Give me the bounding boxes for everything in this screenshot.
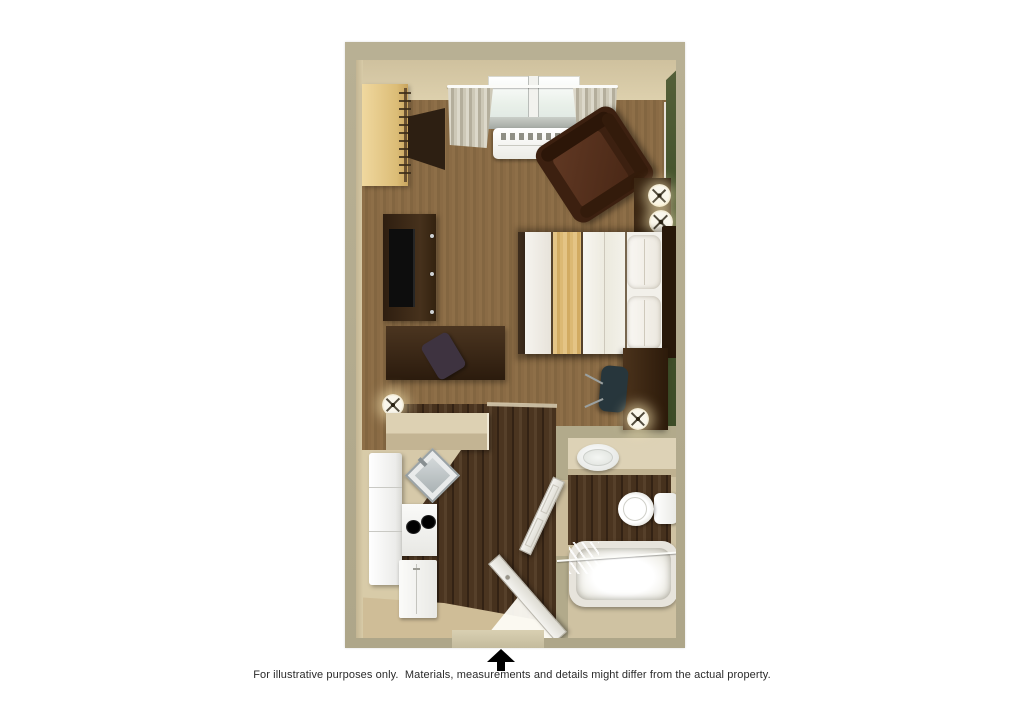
drawer-knob (430, 234, 434, 238)
disclaimer-text: For illustrative purposes only. Material… (0, 669, 1024, 681)
bed-scarf (551, 232, 583, 354)
bed-linen (525, 232, 551, 354)
television (389, 229, 415, 307)
bathroom-sink (577, 444, 619, 471)
stove (402, 504, 437, 556)
door-handle (505, 575, 511, 581)
drawer-knob (430, 272, 434, 276)
faucet (418, 457, 428, 467)
curtain-left (448, 88, 493, 148)
queen-bed (525, 232, 662, 354)
sink-bowl (583, 449, 613, 466)
pillow (627, 296, 661, 350)
drawer-knob (430, 310, 434, 314)
dishwasher (399, 560, 437, 618)
refrigerator (369, 453, 402, 585)
pillow (627, 235, 661, 289)
floor-plan-interior (356, 60, 676, 638)
burner (406, 520, 421, 534)
floor-plan (345, 42, 685, 648)
bed-seam (604, 232, 605, 354)
desk-lamp-icon (627, 408, 649, 430)
office-chair (598, 365, 629, 413)
toilet-tank (654, 493, 676, 524)
kitchen-counter-bar (386, 413, 489, 450)
burner (421, 515, 436, 529)
window-mullion (528, 76, 539, 122)
counter-edge-highlight (487, 413, 489, 450)
headboard (662, 226, 676, 358)
bed-footboard (518, 232, 525, 354)
curtain-rod (447, 85, 618, 88)
table-lamp-icon (648, 184, 671, 207)
toilet-seat (623, 497, 647, 521)
toilet (618, 492, 654, 526)
entry-threshold (452, 630, 544, 648)
tv-dresser (383, 214, 436, 321)
